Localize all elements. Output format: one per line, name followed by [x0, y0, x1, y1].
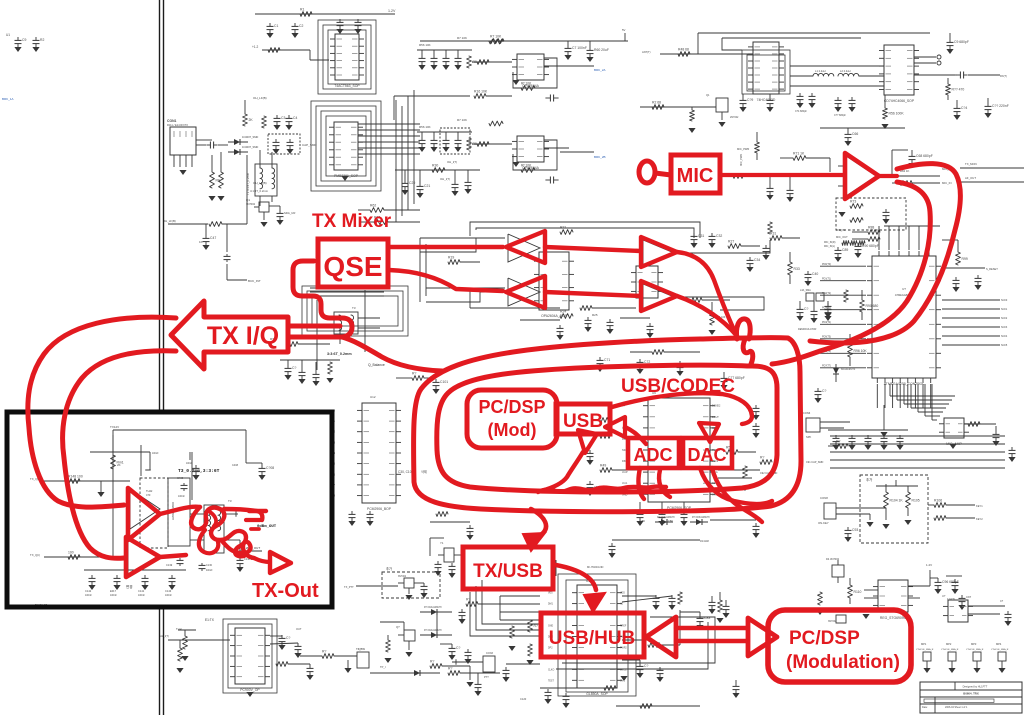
svg-text:C139: C139	[166, 563, 173, 567]
svg-text:C66: C66	[852, 132, 858, 136]
svg-text:Q?: Q?	[396, 625, 400, 629]
svg-text:C1: C1	[274, 24, 278, 28]
svg-text:C101: C101	[440, 380, 448, 384]
svg-text:MIC_IN: MIC_IN	[836, 228, 845, 232]
svg-text:C9: C9	[22, 38, 26, 42]
svg-text:100nF: 100nF	[186, 463, 193, 465]
svg-text:Vcc1: Vcc1	[622, 482, 628, 485]
svg-text:C90 680pF: C90 680pF	[862, 244, 879, 248]
svg-text:PTT: PTT	[484, 676, 489, 679]
svg-text:CON9: CON9	[358, 648, 366, 651]
svg-text:4:1:4T_0.2mm: 4:1:4T_0.2mm	[250, 189, 269, 193]
svg-text:100nF: 100nF	[110, 594, 117, 597]
svg-text:R49: R49	[600, 464, 606, 468]
svg-text:Rf 10K: Rf 10K	[521, 164, 532, 168]
svg-text:R?: R?	[534, 624, 538, 628]
svg-text:REG_STG6909C: REG_STG6909C	[880, 616, 907, 620]
svg-text:KEY1: KEY1	[976, 504, 983, 508]
svg-text:C?? 680pF: C?? 680pF	[834, 114, 846, 117]
svg-text:100nF: 100nF	[85, 594, 92, 597]
svg-text:C143: C143	[165, 589, 172, 593]
svg-text:C?9: C?9	[747, 98, 753, 102]
svg-text:R?: R?	[448, 667, 452, 671]
svg-text:2N7002: 2N7002	[730, 116, 739, 119]
svg-text:DM1: DM1	[548, 604, 554, 606]
svg-text:USB/HUB: USB/HUB	[549, 628, 636, 649]
svg-text:(Modulation): (Modulation)	[786, 652, 900, 673]
svg-text:1K: 1K	[199, 240, 203, 244]
svg-text:C40: C40	[812, 272, 818, 276]
svg-text:C91 CAP_SMD: C91 CAP_SMD	[806, 461, 824, 464]
svg-text:C?: C?	[644, 664, 648, 668]
svg-text:R110: R110	[854, 590, 862, 594]
svg-text:R56 10K: R56 10K	[419, 125, 431, 129]
svg-text:C9 680pF: C9 680pF	[954, 40, 969, 44]
svg-text:PC/DSP: PC/DSP	[478, 397, 545, 417]
svg-text:C3: C3	[281, 116, 285, 120]
svg-text:R96 10K: R96 10K	[854, 349, 868, 353]
svg-text:L2 2.2uH: L2 2.2uH	[840, 69, 851, 73]
svg-text:TX12V: TX12V	[110, 425, 119, 429]
svg-text:1N4007_SMD: 1N4007_SMD	[242, 135, 258, 139]
svg-text:R105: R105	[912, 499, 920, 503]
svg-text:R2 68: R2 68	[652, 101, 661, 105]
svg-text:SDA_UR: SDA_UR	[284, 211, 295, 215]
svg-text:Y1: Y1	[440, 541, 444, 545]
svg-text:470: 470	[146, 493, 151, 497]
svg-text:T3: T3	[352, 306, 356, 310]
svg-text:74ACT563_SOP: 74ACT563_SOP	[334, 84, 360, 88]
svg-text:D? KDA4148UTF: D? KDA4148UTF	[424, 629, 442, 632]
svg-text:TX_Q(t): TX_Q(t)	[30, 553, 40, 557]
svg-text:R62: R62	[370, 204, 376, 208]
svg-text:U?: U?	[942, 594, 946, 598]
svg-text:R31: R31	[770, 232, 776, 236]
svg-text:PC900V_OP: PC900V_OP	[240, 688, 260, 692]
svg-text:GL850A_SOP: GL850A_SOP	[586, 692, 608, 696]
svg-text:R48 68: R48 68	[678, 48, 689, 52]
svg-text:MP1: MP1	[921, 642, 927, 646]
svg-text:U12: U12	[370, 395, 376, 399]
svg-text:추가: 추가	[386, 566, 392, 571]
svg-text:C89: C89	[842, 248, 848, 252]
svg-text:TX-Out: TX-Out	[252, 580, 319, 602]
svg-text:TH42: TH42	[146, 489, 153, 493]
svg-text:400nF: 400nF	[206, 570, 213, 572]
svg-text:R90 680: R90 680	[866, 304, 879, 308]
svg-text:PC/DSP: PC/DSP	[789, 628, 860, 649]
svg-text:CD74HC4066_SOP: CD74HC4066_SOP	[884, 99, 915, 103]
svg-text:TX/USB: TX/USB	[473, 561, 543, 582]
svg-text:C34: C34	[754, 258, 760, 262]
svg-text:U?: U?	[902, 287, 906, 291]
svg-text:VTHCLE_SMA_R: VTHCLE_SMA_R	[916, 648, 934, 651]
svg-text:C142: C142	[85, 589, 92, 593]
svg-text:MP2: MP2	[946, 642, 952, 646]
svg-text:PCM2906_BOP: PCM2906_BOP	[367, 507, 392, 511]
svg-text:(Mod): (Mod)	[488, 420, 537, 440]
svg-text:TP_I: TP_I	[380, 665, 386, 669]
svg-text:C?? 220nF: C?? 220nF	[992, 104, 1009, 108]
svg-text:PD5(T5): PD5(T5)	[822, 336, 831, 339]
svg-text:BCK_INT: BCK_INT	[248, 279, 261, 283]
svg-text:3N7002: 3N7002	[398, 576, 407, 578]
svg-text:C93: C93	[852, 528, 858, 532]
svg-text:SCK4: SCK4	[1001, 335, 1008, 338]
svg-text:C4: C4	[293, 116, 297, 120]
svg-text:D4 3N7002: D4 3N7002	[826, 557, 840, 561]
svg-text:R27: R27	[728, 240, 734, 244]
svg-text:QSE: QSE	[323, 251, 382, 282]
svg-text:VccP: VccP	[622, 471, 628, 474]
svg-text:VD5: VD5	[548, 593, 553, 595]
svg-text:CVCC: CVCC	[620, 669, 627, 671]
svg-text:+1.2: +1.2	[252, 45, 259, 49]
svg-text:ON-KEY: ON-KEY	[818, 521, 829, 525]
svg-text:1N4007_SMD: 1N4007_SMD	[242, 145, 258, 149]
svg-text:MIC_PWR: MIC_PWR	[737, 147, 749, 151]
svg-text:100nF: 100nF	[165, 594, 172, 597]
svg-text:C130: C130	[206, 564, 213, 567]
svg-text:B0604_TRX: B0604_TRX	[963, 692, 979, 696]
svg-text:OH_LF(B): OH_LF(B)	[253, 96, 267, 100]
svg-text:C71: C71	[604, 358, 610, 362]
svg-text:TX I/Q: TX I/Q	[207, 322, 279, 350]
svg-text:SCK5: SCK5	[1001, 344, 1008, 347]
svg-text:BRK_2B: BRK_2B	[594, 155, 606, 159]
svg-text:VDD: VDD	[620, 593, 625, 595]
svg-text:L3A_SMA: L3A_SMA	[800, 289, 811, 292]
svg-text:1N4148: 1N4148	[700, 540, 709, 543]
svg-text:C?4: C?4	[961, 106, 967, 110]
svg-text:BRK_1A: BRK_1A	[2, 97, 14, 101]
svg-text:C?: C?	[804, 307, 808, 311]
svg-text:VTHCLE_SMA_R: VTHCLE_SMA_R	[966, 648, 984, 651]
svg-text:R7 10K: R7 10K	[490, 35, 502, 39]
svg-text:R56 100K: R56 100K	[889, 112, 905, 116]
svg-text:HL_I(T): HL_I(T)	[160, 634, 169, 638]
svg-text:R?: R?	[430, 660, 434, 664]
svg-text:D? KDA4148UTF: D? KDA4148UTF	[424, 606, 442, 609]
svg-text:D? KDS4148UTF: D? KDS4148UTF	[657, 517, 675, 519]
svg-text:Designed by HL1FTT: Designed by HL1FTT	[963, 685, 988, 689]
svg-text:OH_LF(B): OH_LF(B)	[163, 219, 176, 223]
svg-text:3:3:6T_0.2mm: 3:3:6T_0.2mm	[327, 352, 352, 356]
svg-text:CON6: CON6	[803, 411, 811, 415]
svg-text:VTHCLE_SMA_R: VTHCLE_SMA_R	[941, 648, 959, 651]
svg-text:R30: R30	[432, 164, 438, 168]
svg-text:SCK3: SCK3	[1001, 326, 1008, 329]
svg-text:MIC_IN: MIC_IN	[942, 181, 951, 185]
svg-text:삭제: 삭제	[421, 469, 427, 474]
svg-text:USB: USB	[563, 411, 603, 432]
svg-text:100nF: 100nF	[152, 453, 159, 455]
svg-text:C31: C31	[698, 234, 704, 238]
svg-text:TX Mixer: TX Mixer	[312, 211, 392, 232]
svg-text:R71 1K: R71 1K	[793, 152, 805, 156]
svg-text:R21: R21	[560, 226, 566, 230]
svg-text:L1 2.2uH: L1 2.2uH	[815, 69, 826, 73]
svg-text:T3: T3	[228, 499, 232, 503]
svg-text:R56 10K: R56 10K	[419, 43, 431, 47]
svg-text:C7 100nF: C7 100nF	[572, 46, 587, 50]
svg-text:DGND2: DGND2	[712, 405, 721, 408]
svg-text:R7 10K: R7 10K	[457, 36, 467, 40]
svg-text:C47: C47	[210, 236, 216, 240]
svg-text:R33: R33	[794, 267, 800, 271]
svg-text:2K: 2K	[249, 118, 254, 122]
svg-text:OVC: OVC	[620, 680, 625, 682]
svg-text:PD4(T4): PD4(T4)	[822, 321, 831, 324]
svg-text:E1:TX: E1:TX	[205, 618, 215, 622]
svg-text:DAC: DAC	[688, 445, 727, 465]
svg-text:PD3(T3): PD3(T3)	[822, 307, 831, 310]
svg-text:R7 10K: R7 10K	[457, 118, 467, 122]
svg-text:BRK_2A: BRK_2A	[594, 68, 606, 72]
svg-text:Date:: Date:	[922, 706, 928, 709]
svg-text:R2: R2	[40, 38, 44, 42]
svg-text:MI-IT4004-ND: MI-IT4004-ND	[587, 565, 604, 569]
svg-text:C120: C120	[520, 697, 527, 701]
svg-text:C?: C?	[292, 366, 296, 370]
svg-text:5V: 5V	[622, 28, 626, 32]
svg-text:MIC_PWR: MIC_PWR	[739, 154, 743, 166]
svg-text:TX_MON: TX_MON	[965, 162, 977, 166]
svg-text:CON3: CON3	[486, 652, 494, 655]
svg-text:TEST: TEST	[548, 680, 554, 682]
svg-text:MIC_OUT: MIC_OUT	[836, 235, 848, 239]
svg-text:1.2V: 1.2V	[926, 563, 932, 567]
svg-text:R88: R88	[868, 226, 874, 230]
svg-text:2K: 2K	[117, 463, 121, 467]
svg-text:PD0(T0): PD0(T0)	[822, 263, 831, 266]
svg-text:C20: C20	[409, 181, 415, 185]
svg-text:R?: R?	[836, 440, 840, 444]
svg-text:C?: C?	[822, 389, 826, 393]
svg-text:VTHCLE_SMA_R: VTHCLE_SMA_R	[991, 648, 1009, 651]
svg-text:1.2V: 1.2V	[388, 9, 396, 13]
svg-text:TX_PTT: TX_PTT	[344, 585, 354, 589]
svg-text:R?: R?	[466, 598, 470, 602]
svg-text:R?: R?	[412, 372, 416, 376]
svg-text:MP4: MP4	[996, 642, 1002, 646]
svg-text:SCK0: SCK0	[1001, 299, 1008, 302]
svg-text:RX(T): RX(T)	[1000, 74, 1007, 78]
svg-text:PD2(T2): PD2(T2)	[822, 292, 831, 295]
svg-text:R99: R99	[962, 257, 968, 261]
svg-text:C141: C141	[138, 589, 145, 593]
svg-text:RJ11 / E14 RX/TX: RJ11 / E14 RX/TX	[167, 123, 188, 127]
svg-text:R60 20uF: R60 20uF	[594, 48, 609, 52]
svg-text:R106: R106	[934, 499, 942, 503]
svg-text:R16 10K: R16 10K	[474, 90, 488, 94]
svg-text:ADC: ADC	[634, 445, 673, 465]
svg-text:MIC_IN(R): MIC_IN(R)	[824, 241, 836, 244]
svg-text:R104 1K: R104 1K	[890, 499, 904, 503]
svg-text:추가: 추가	[866, 477, 872, 482]
svg-text:C68 680pF: C68 680pF	[916, 154, 933, 158]
svg-text:SPK: SPK	[806, 435, 811, 439]
svg-text:DOUT: DOUT	[712, 416, 719, 419]
svg-text:PD1(T1): PD1(T1)	[822, 278, 831, 281]
svg-text:CLKO: CLKO	[548, 669, 554, 671]
svg-text:R?: R?	[760, 456, 764, 460]
svg-text:PD7(T7): PD7(T7)	[822, 365, 831, 368]
svg-text:C21: C21	[424, 184, 430, 188]
svg-text:100nF: 100nF	[138, 594, 145, 597]
svg-text:C30, C10: C30, C10	[398, 470, 412, 474]
svg-text:R148 100: R148 100	[68, 475, 83, 479]
svg-text:CAP_SMD: CAP_SMD	[302, 143, 317, 147]
svg-text:SCK2: SCK2	[1001, 317, 1008, 320]
svg-text:C408: C408	[232, 464, 239, 467]
svg-text:D? KDS4148UTF: D? KDS4148UTF	[692, 517, 710, 519]
svg-text:AF_OUT: AF_OUT	[965, 176, 976, 180]
svg-text:Q_Balance: Q_Balance	[368, 363, 385, 367]
svg-text:R?? 470: R?? 470	[952, 88, 965, 92]
svg-text:OH_I(T): OH_I(T)	[447, 160, 457, 164]
svg-text:R?: R?	[322, 650, 326, 654]
svg-text:CON8: CON8	[820, 496, 828, 500]
svg-text:Q1: Q1	[706, 93, 710, 97]
svg-text:SCK1: SCK1	[1001, 308, 1008, 311]
svg-text:S_RESET: S_RESET	[986, 267, 998, 271]
svg-text:KEY2: KEY2	[976, 517, 983, 521]
svg-text:OUT: OUT	[296, 627, 302, 631]
svg-text:C?08: C?08	[266, 466, 274, 470]
svg-text:R25: R25	[592, 313, 598, 317]
svg-text:MIC: MIC	[677, 165, 714, 187]
svg-text:R73: R73	[850, 200, 856, 204]
svg-text:KDA4148UTF: KDA4148UTF	[841, 368, 856, 371]
svg-text:CON1: CON1	[167, 119, 177, 123]
svg-text:E017: E017	[110, 589, 117, 593]
svg-text:C408: C408	[177, 476, 184, 480]
svg-text:R1: R1	[300, 8, 304, 12]
svg-text:C86: C86	[668, 519, 673, 523]
svg-text:OH_I(T): OH_I(T)	[440, 177, 450, 181]
svg-text:C?4 680pF: C?4 680pF	[795, 110, 807, 113]
svg-text:3N7002: 3N7002	[828, 620, 837, 623]
svg-text:MP3: MP3	[971, 642, 977, 646]
svg-text:100: 100	[68, 551, 74, 555]
svg-text:ANT(T): ANT(T)	[642, 50, 651, 54]
svg-text:C85: C85	[640, 519, 645, 523]
svg-text:C?: C?	[286, 636, 290, 640]
svg-text:2006-04 Sheet 1 of 1: 2006-04 Sheet 1 of 1	[945, 706, 968, 709]
svg-text:100nF: 100nF	[178, 495, 185, 498]
svg-text:U1: U1	[6, 33, 10, 37]
svg-text:MIC_IN(L): MIC_IN(L)	[824, 245, 835, 248]
svg-text:DEMODULATOR: DEMODULATOR	[798, 328, 817, 331]
svg-text:R19: R19	[448, 256, 454, 260]
svg-text:C?: C?	[456, 646, 460, 650]
svg-text:변경: 변경	[126, 584, 133, 589]
svg-text:C2: C2	[299, 24, 303, 28]
svg-text:Rf 10K: Rf 10K	[521, 82, 532, 86]
svg-text:C97: C97	[966, 595, 972, 599]
svg-text:C32: C32	[716, 234, 722, 238]
svg-text:R24: R24	[560, 310, 566, 314]
